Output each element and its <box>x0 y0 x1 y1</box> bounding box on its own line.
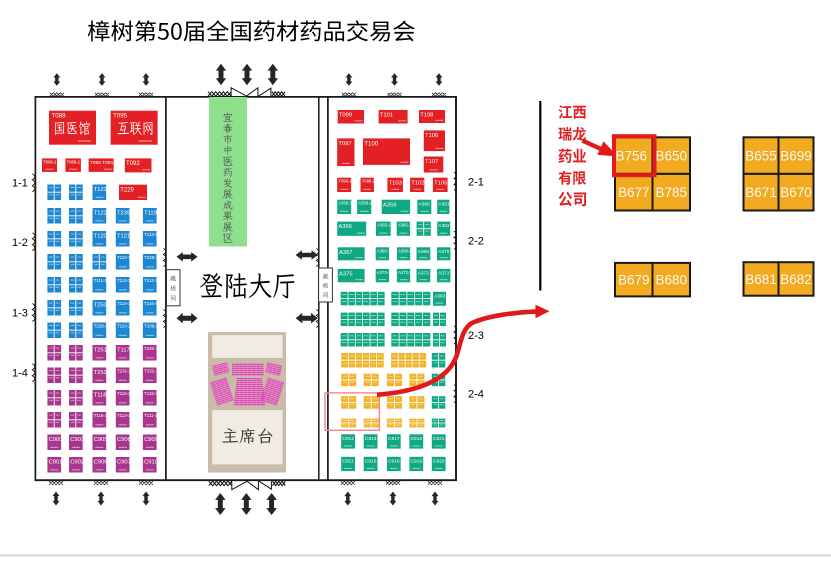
svg-text:C908: C908 <box>117 437 131 443</box>
svg-text:T252: T252 <box>94 370 107 376</box>
svg-text:C903: C903 <box>70 437 84 443</box>
svg-text:T108: T108 <box>420 113 433 119</box>
svg-text:C901: C901 <box>49 460 63 466</box>
svg-text:T089-1: T089-1 <box>43 159 57 164</box>
svg-text:T090 T091: T090 T091 <box>90 160 114 166</box>
svg-text:C905: C905 <box>94 437 108 443</box>
svg-text:T098-1: T098-1 <box>338 179 352 184</box>
svg-text:A375: A375 <box>339 272 353 278</box>
svg-text:T251: T251 <box>94 348 107 354</box>
svg-text:C909: C909 <box>144 437 158 443</box>
svg-text:1-4: 1-4 <box>12 368 28 380</box>
svg-text:T228-2: T228-2 <box>94 324 108 329</box>
svg-text:T239: T239 <box>117 211 130 217</box>
svg-text:T107: T107 <box>425 159 438 165</box>
svg-text:T116-2: T116-2 <box>94 413 108 418</box>
svg-text:T088: T088 <box>52 113 67 120</box>
svg-text:2-4: 2-4 <box>468 389 484 401</box>
svg-text:A373-2: A373-2 <box>398 270 412 275</box>
svg-text:A367: A367 <box>339 250 353 256</box>
svg-text:A369: A369 <box>418 249 430 255</box>
svg-text:T123: T123 <box>94 187 107 193</box>
svg-text:T231-1: T231-1 <box>144 369 158 374</box>
svg-text:C917: C917 <box>388 436 400 442</box>
svg-text:T112-1: T112-1 <box>144 278 158 283</box>
svg-text:A358-1: A358-1 <box>338 201 352 206</box>
svg-text:T231-2: T231-2 <box>117 369 131 374</box>
svg-text:T113-1: T113-1 <box>117 413 131 418</box>
svg-text:T121: T121 <box>117 234 130 240</box>
svg-text:T111-2: T111-2 <box>94 278 108 283</box>
svg-text:A365-2: A365-2 <box>398 223 412 228</box>
svg-text:B681: B681 <box>745 272 777 287</box>
svg-text:C915: C915 <box>365 458 377 464</box>
svg-text:B785: B785 <box>655 185 687 200</box>
svg-text:B679: B679 <box>618 273 650 288</box>
svg-text:C910: C910 <box>144 460 158 466</box>
svg-text:T113-2: T113-2 <box>144 232 158 237</box>
svg-text:T228-1: T228-1 <box>144 255 158 260</box>
svg-text:A358-2: A358-2 <box>358 201 372 206</box>
svg-text:B677: B677 <box>618 185 650 200</box>
svg-text:T117: T117 <box>117 348 130 354</box>
svg-text:T112-2: T112-2 <box>117 278 131 283</box>
svg-text:A365-1: A365-1 <box>377 223 391 228</box>
svg-text:B655: B655 <box>745 149 777 164</box>
svg-text:T122: T122 <box>94 211 107 217</box>
svg-text:T092: T092 <box>126 161 140 167</box>
svg-text:C907: C907 <box>117 460 131 466</box>
svg-text:T115-1: T115-1 <box>144 391 158 396</box>
svg-text:B680: B680 <box>655 273 687 288</box>
svg-text:T109-2: T109-2 <box>144 324 158 329</box>
svg-text:C919: C919 <box>411 458 423 464</box>
svg-text:T114-1: T114-1 <box>117 301 131 306</box>
svg-text:T089-2: T089-2 <box>67 159 81 164</box>
svg-text:A373-1: A373-1 <box>377 270 391 275</box>
svg-text:A366: A366 <box>338 224 352 230</box>
svg-text:B650: B650 <box>655 149 687 164</box>
svg-text:1-3: 1-3 <box>12 308 28 320</box>
svg-text:C913: C913 <box>365 436 377 442</box>
svg-text:T103: T103 <box>389 180 402 186</box>
svg-text:T099: T099 <box>339 113 352 119</box>
svg-text:B699: B699 <box>780 149 812 164</box>
svg-text:T110-1: T110-1 <box>117 255 131 260</box>
svg-text:T110-2: T110-2 <box>117 324 131 329</box>
svg-text:T102: T102 <box>411 180 424 186</box>
svg-text:B756: B756 <box>616 149 648 164</box>
svg-text:T101: T101 <box>380 113 393 119</box>
svg-text:C900: C900 <box>49 437 63 443</box>
svg-text:T118: T118 <box>94 393 107 399</box>
svg-text:B682: B682 <box>780 272 812 287</box>
svg-text:2-3: 2-3 <box>468 330 484 342</box>
svg-text:T120: T120 <box>94 234 107 240</box>
svg-text:T106: T106 <box>425 133 438 139</box>
svg-text:T100: T100 <box>364 140 379 147</box>
svg-text:T098-2: T098-2 <box>362 179 376 184</box>
svg-text:T115-2: T115-2 <box>117 391 131 396</box>
svg-text:A371: A371 <box>438 271 450 277</box>
svg-text:B671: B671 <box>745 185 777 200</box>
svg-text:C911: C911 <box>342 458 353 464</box>
svg-text:C921: C921 <box>433 436 445 442</box>
svg-text:A363: A363 <box>434 293 446 299</box>
svg-text:2-2: 2-2 <box>468 235 484 247</box>
svg-text:C906: C906 <box>94 460 108 466</box>
svg-text:A370: A370 <box>438 249 450 255</box>
svg-text:T220-1: T220-1 <box>144 346 158 351</box>
svg-text:A360: A360 <box>419 201 431 207</box>
svg-text:C912: C912 <box>342 436 354 442</box>
svg-text:A359: A359 <box>383 202 397 208</box>
svg-text:T097: T097 <box>338 141 351 147</box>
svg-text:1-2: 1-2 <box>12 237 28 249</box>
svg-text:T111-1: T111-1 <box>144 413 158 418</box>
svg-text:B670: B670 <box>780 185 812 200</box>
svg-text:A368-1: A368-1 <box>377 248 391 253</box>
svg-text:A368-2: A368-2 <box>398 248 412 253</box>
svg-text:A362: A362 <box>438 223 450 229</box>
svg-text:T105: T105 <box>434 180 447 186</box>
svg-text:T229: T229 <box>120 188 134 194</box>
svg-text:T119: T119 <box>144 211 157 217</box>
svg-text:C902: C902 <box>70 460 84 466</box>
svg-text:T095: T095 <box>113 113 128 120</box>
svg-text:2-1: 2-1 <box>468 176 484 188</box>
svg-text:T116-1: T116-1 <box>144 301 158 306</box>
svg-text:C916: C916 <box>388 458 400 464</box>
svg-text:C920: C920 <box>433 458 445 464</box>
svg-text:T253: T253 <box>94 303 107 309</box>
svg-text:A372: A372 <box>418 271 430 277</box>
svg-text:1-1: 1-1 <box>12 178 28 190</box>
svg-text:C918: C918 <box>411 436 423 442</box>
svg-text:A361: A361 <box>438 201 450 207</box>
